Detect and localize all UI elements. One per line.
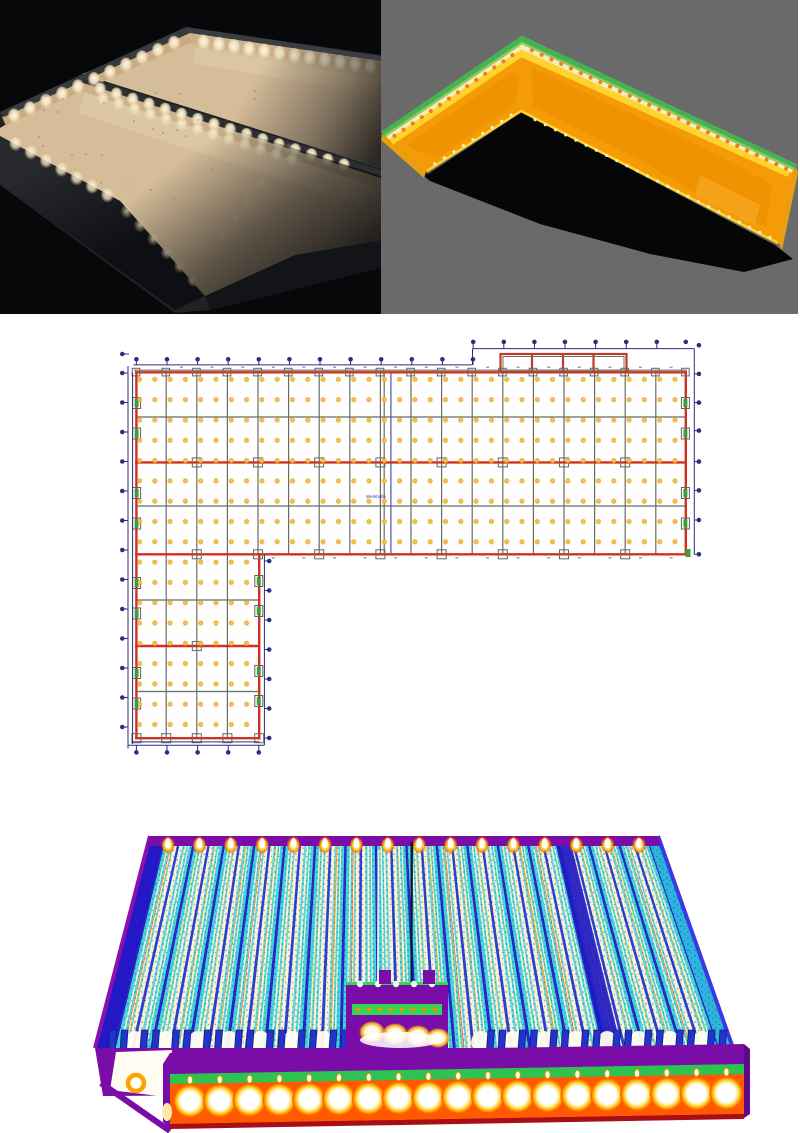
svg-text:Werkhalle: Werkhalle (366, 494, 386, 499)
